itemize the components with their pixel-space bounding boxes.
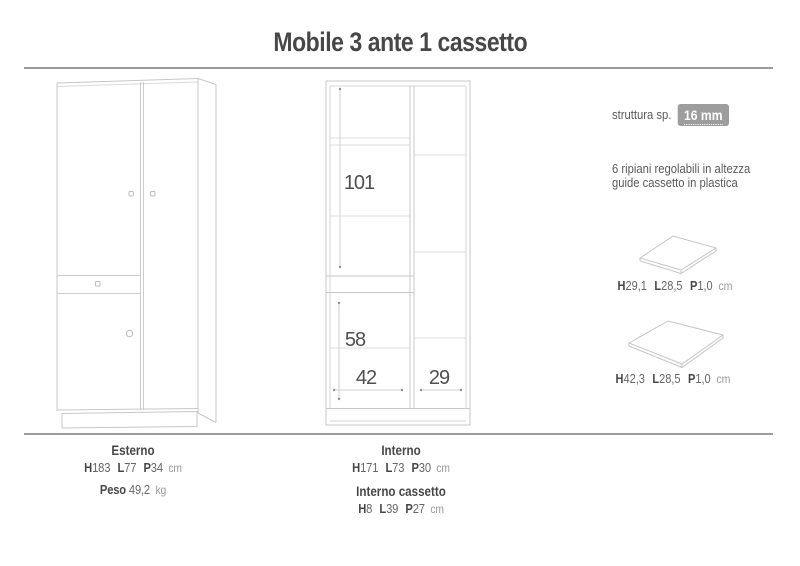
dim-value: 1,0 — [697, 279, 712, 293]
dim-key: P — [405, 501, 412, 516]
dim-value: 34 — [151, 460, 163, 475]
footer-interno: Interno H171 L73 P30 cm Interno cassetto… — [301, 443, 501, 516]
exterior-drawing — [48, 70, 223, 430]
dim-value: 171 — [360, 460, 378, 475]
structure-thickness-value: 16 mm — [684, 108, 723, 125]
dim-unit: cm — [718, 279, 732, 293]
dim-value: 29,1 — [626, 279, 647, 293]
shelf-notes: 6 ripiani regolabili in altezza guide ca… — [612, 162, 750, 190]
shelf-lines-left — [330, 138, 410, 348]
dim-label-upper-height: 101 — [344, 172, 375, 194]
note-line-2: guide cassetto in plastica — [612, 176, 750, 190]
door-gap — [141, 82, 144, 410]
dimension-arrow-dots — [333, 88, 462, 400]
dim-unit: cm — [436, 461, 449, 475]
dim-value: 28,5 — [661, 279, 682, 293]
footer-divider — [24, 433, 773, 435]
shelf-icons — [613, 225, 737, 373]
shelf-icon-large — [629, 321, 723, 368]
interno-dimensions: H171 L73 P30 cm — [315, 460, 487, 475]
footer-esterno: Esterno H183 L77 P34 cm Peso 49,2 kg — [33, 443, 233, 497]
dim-value: 1,0 — [695, 372, 710, 386]
dim-key: L — [117, 460, 124, 475]
interior-drawing: 101 58 42 29 — [320, 72, 480, 432]
door-knob-left — [129, 192, 134, 197]
dim-value: 28,5 — [659, 372, 680, 386]
dim-key: P — [143, 460, 150, 475]
dim-key: H — [616, 372, 624, 386]
wardrobe-outline — [57, 79, 216, 423]
page-title-text: Mobile 3 ante 1 cassetto — [273, 27, 527, 58]
interno-cassetto-title: Interno cassetto — [315, 484, 487, 499]
structure-thickness-badge: 16 mm — [678, 104, 729, 126]
door-knob-right — [151, 192, 156, 197]
drawer-knob — [96, 282, 101, 287]
dim-key: H — [618, 279, 626, 293]
structure-label: struttura sp. — [612, 108, 671, 122]
dim-value: 30 — [419, 460, 431, 475]
page-title: Mobile 3 ante 1 cassetto — [0, 27, 800, 58]
dim-value: 42,3 — [624, 372, 645, 386]
dim-label-left-width: 42 — [356, 367, 377, 389]
dim-unit: cm — [716, 372, 730, 386]
interno-title: Interno — [315, 443, 487, 458]
dim-value: 183 — [92, 460, 110, 475]
shelf-icon-small — [640, 236, 716, 274]
structure-spec-row: struttura sp. 16 mm — [612, 104, 729, 126]
center-partition — [410, 86, 414, 409]
lower-door-knob — [126, 330, 132, 336]
dim-key: P — [411, 460, 418, 475]
dim-key: L — [379, 501, 386, 516]
weight-unit: kg — [156, 483, 167, 497]
shelf-lines-right — [414, 155, 466, 338]
dimension-lines — [333, 88, 462, 400]
title-underline — [24, 67, 773, 69]
dim-label-lower-height: 58 — [345, 329, 366, 351]
dim-value: 27 — [413, 501, 425, 516]
esterno-weight: Peso 49,2 kg — [47, 482, 219, 497]
dim-key: L — [385, 460, 392, 475]
dim-value: 77 — [124, 460, 136, 475]
dim-unit: cm — [168, 461, 181, 475]
dim-label-right-width: 29 — [429, 367, 450, 389]
esterno-title: Esterno — [47, 443, 219, 458]
dim-unit: cm — [430, 502, 443, 516]
shelf-small-dimensions: H29,1 L28,5 P1,0 cm — [603, 279, 747, 293]
dim-value: 73 — [392, 460, 404, 475]
esterno-dimensions: H183 L77 P34 cm — [47, 460, 219, 475]
interno-cassetto-dimensions: H8 L39 P27 cm — [315, 501, 487, 516]
plinth — [62, 412, 197, 429]
dim-value: 8 — [366, 501, 372, 516]
weight-value: 49,2 — [129, 482, 150, 497]
doors-bottom-edge — [57, 409, 198, 411]
weight-label: Peso — [100, 482, 126, 497]
shelf-large-dimensions: H42,3 L28,5 P1,0 cm — [601, 372, 745, 386]
note-line-1: 6 ripiani regolabili in altezza — [612, 162, 750, 176]
drawer-band — [326, 276, 414, 293]
dim-value: 39 — [386, 501, 398, 516]
